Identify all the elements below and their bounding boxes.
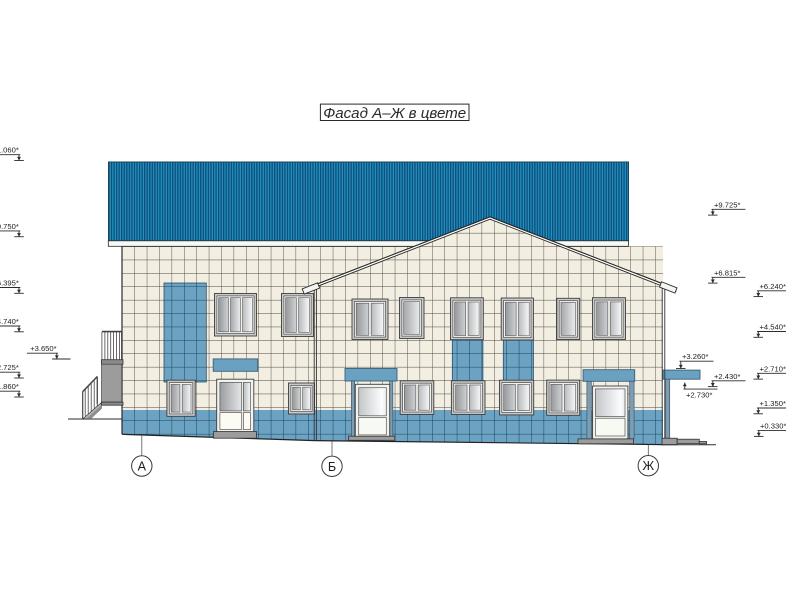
svg-text:+2.710*: +2.710* [760,364,786,373]
svg-text:Ж: Ж [642,459,654,473]
svg-text:+0.330*: +0.330* [760,422,786,431]
svg-text:+3.260*: +3.260* [682,352,708,361]
svg-text:+6.815*: +6.815* [714,268,740,277]
svg-text:Фасад А–Ж в цвете: Фасад А–Ж в цвете [323,105,466,122]
svg-text:2.725*: 2.725* [0,363,19,372]
svg-text:+1.350*: +1.350* [760,399,786,408]
svg-text:1.060*: 1.060* [0,146,19,155]
svg-text:+6.240*: +6.240* [760,282,786,291]
svg-text:6.395*: 6.395* [0,279,19,288]
svg-text:+4.540*: +4.540* [760,323,786,332]
svg-text:А: А [138,460,147,474]
svg-text:4.740*: 4.740* [0,317,19,326]
svg-text:+2.730*: +2.730* [686,391,712,400]
svg-text:1.860*: 1.860* [0,382,19,391]
svg-text:+3.650*: +3.650* [30,344,56,353]
svg-text:Б: Б [328,460,336,474]
svg-text:9.750*: 9.750* [0,222,19,231]
svg-text:+9.725*: +9.725* [714,200,740,209]
svg-text:+2.430*: +2.430* [714,372,740,381]
